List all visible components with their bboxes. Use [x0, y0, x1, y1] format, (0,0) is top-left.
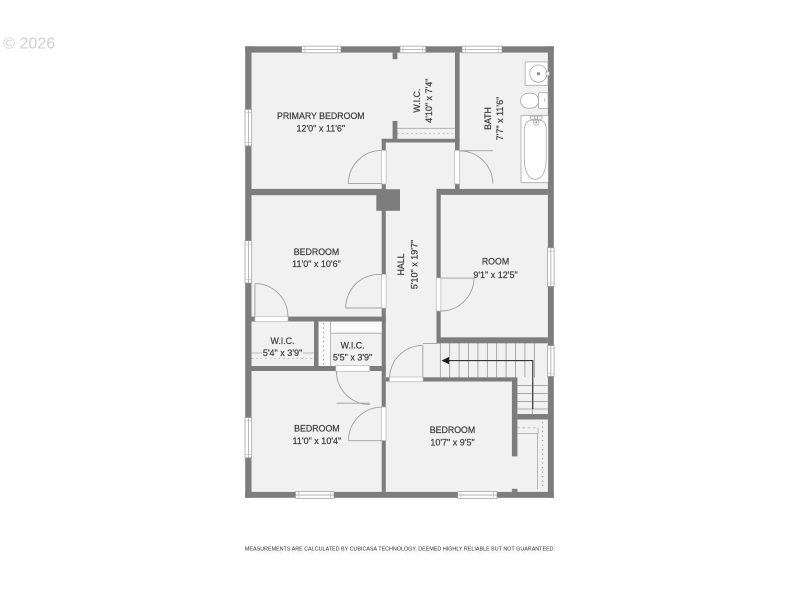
svg-text:5'4" x 3'9": 5'4" x 3'9" [263, 348, 302, 358]
svg-text:MEASUREMENTS ARE CALCULATED BY: MEASUREMENTS ARE CALCULATED BY CUBICASA … [256, 550, 544, 555]
svg-text:9'1" x 12'5": 9'1" x 12'5" [473, 270, 517, 280]
svg-text:© 2026: © 2026 [3, 35, 55, 52]
svg-text:W.I.C.: W.I.C. [341, 340, 365, 350]
svg-text:HALL: HALL [396, 253, 406, 275]
svg-text:12'0" x 11'6": 12'0" x 11'6" [296, 123, 345, 133]
svg-text:11'0" x 10'4": 11'0" x 10'4" [293, 436, 342, 446]
svg-text:PRIMARY BEDROOM: PRIMARY BEDROOM [277, 111, 365, 121]
svg-text:11'0" x 10'6": 11'0" x 10'6" [292, 259, 341, 269]
svg-text:BEDROOM: BEDROOM [294, 423, 339, 433]
svg-text:ROOM: ROOM [482, 256, 509, 266]
svg-text:BEDROOM: BEDROOM [294, 247, 339, 257]
svg-text:4'10" x 7'4": 4'10" x 7'4" [424, 79, 434, 123]
svg-text:BATH: BATH [483, 107, 493, 130]
svg-text:5'5" x 3'9": 5'5" x 3'9" [333, 353, 372, 363]
svg-text:5'10" x 19'7": 5'10" x 19'7" [409, 240, 419, 289]
svg-text:BEDROOM: BEDROOM [430, 425, 475, 435]
svg-text:10'7" x 9'5": 10'7" x 9'5" [430, 438, 474, 448]
svg-text:7'7" x 11'6": 7'7" x 11'6" [495, 97, 505, 141]
svg-text:W.I.C.: W.I.C. [412, 89, 422, 113]
svg-text:W.I.C.: W.I.C. [271, 336, 295, 346]
